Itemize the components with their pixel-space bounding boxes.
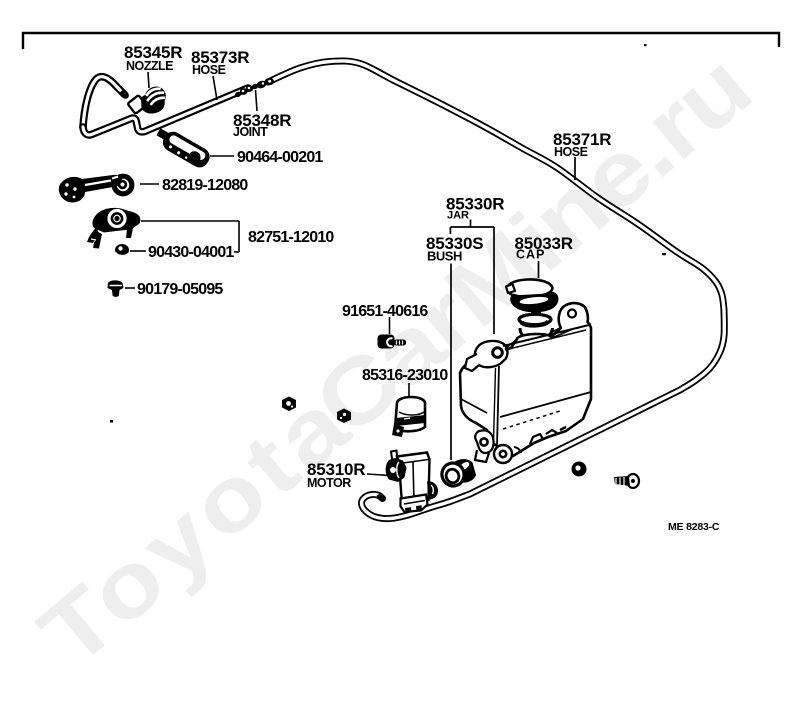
svg-text:82751-12010: 82751-12010 — [248, 229, 334, 246]
svg-text:HOSE: HOSE — [554, 145, 588, 159]
svg-text:90179-05095: 90179-05095 — [137, 281, 223, 298]
svg-text:MOTOR: MOTOR — [307, 476, 351, 490]
svg-text:BUSH: BUSH — [427, 249, 462, 264]
svg-text:90430-04001: 90430-04001 — [148, 244, 234, 261]
svg-text:JAR: JAR — [447, 210, 469, 222]
svg-text:CAP: CAP — [516, 248, 545, 262]
svg-text:82819-12080: 82819-12080 — [162, 177, 248, 194]
svg-text:JOINT: JOINT — [233, 125, 268, 139]
svg-text:90464-00201: 90464-00201 — [237, 149, 323, 166]
svg-text:91651-40616: 91651-40616 — [342, 303, 428, 320]
svg-text:HOSE: HOSE — [192, 63, 226, 77]
svg-text:NOZZLE: NOZZLE — [126, 59, 173, 73]
svg-text:ME 8283-C: ME 8283-C — [668, 521, 720, 533]
svg-text:85316-23010: 85316-23010 — [362, 367, 448, 384]
